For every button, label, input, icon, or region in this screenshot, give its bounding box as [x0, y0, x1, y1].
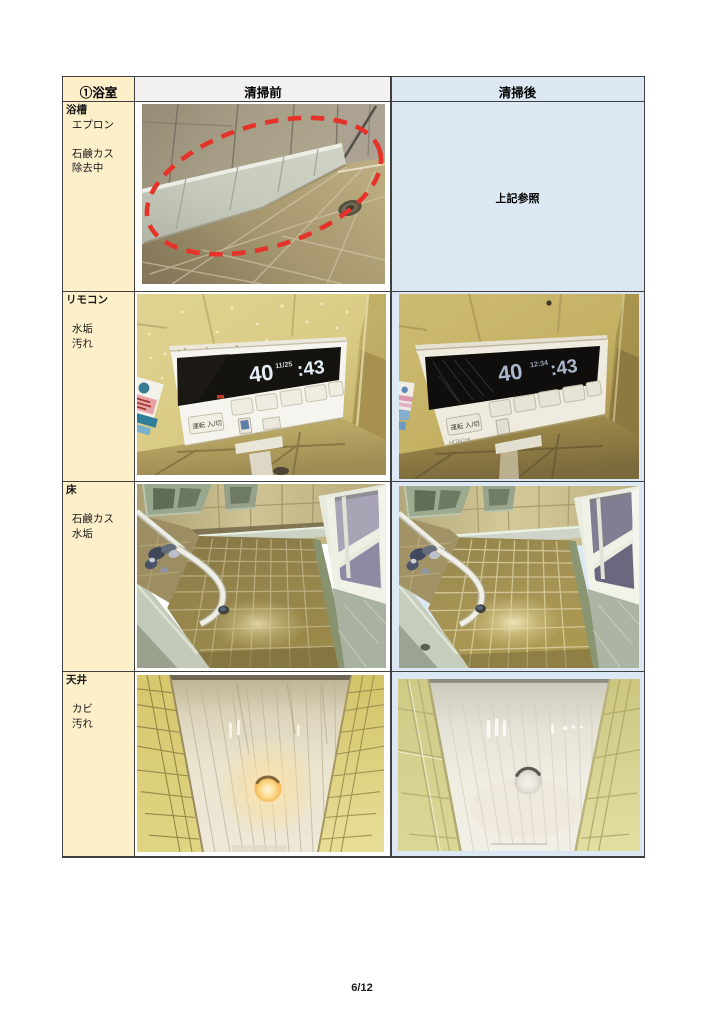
svg-text:40: 40 — [496, 359, 524, 387]
svg-text:40: 40 — [248, 360, 275, 388]
svg-text::43: :43 — [296, 357, 326, 381]
svg-text::43: :43 — [549, 356, 579, 381]
